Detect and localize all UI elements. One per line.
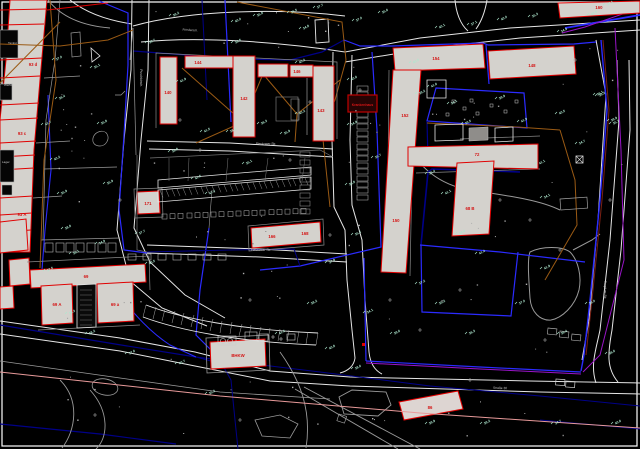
svg-text:150: 150: [392, 218, 400, 223]
svg-text:146: 146: [293, 69, 301, 74]
svg-text:142: 142: [240, 96, 248, 101]
svg-text:Pieskower Str.: Pieskower Str.: [251, 248, 272, 252]
svg-text:Pieskower Str.: Pieskower Str.: [256, 142, 277, 146]
svg-text:69 A: 69 A: [53, 302, 62, 307]
svg-text:72: 72: [475, 152, 480, 157]
svg-text:Puschkinstr.: Puschkinstr.: [139, 69, 143, 86]
svg-text:154: 154: [432, 56, 440, 61]
svg-text:171: 171: [144, 201, 152, 206]
svg-text:140: 140: [164, 90, 172, 95]
svg-text:BHKW: BHKW: [231, 353, 245, 358]
svg-text:93 d: 93 d: [29, 62, 38, 67]
svg-text:152: 152: [401, 113, 409, 118]
svg-text:Lager: Lager: [2, 160, 10, 164]
svg-text:Teupitzer Str.: Teupitzer Str.: [603, 281, 607, 300]
svg-text:93 c: 93 c: [18, 131, 27, 136]
svg-text:69: 69: [84, 274, 89, 279]
svg-text:Krankenhaus: Krankenhaus: [352, 103, 374, 107]
svg-text:144: 144: [194, 60, 202, 65]
svg-text:86: 86: [428, 405, 433, 410]
svg-text:Friedenstr.: Friedenstr.: [182, 28, 197, 33]
svg-text:Werkst: Werkst: [4, 83, 13, 87]
svg-text:68 B: 68 B: [465, 206, 474, 211]
svg-text:168: 168: [301, 231, 309, 236]
svg-text:69 a: 69 a: [111, 302, 120, 307]
svg-text:Straße 30: Straße 30: [493, 386, 507, 390]
svg-text:93 A: 93 A: [18, 212, 27, 217]
svg-text:143: 143: [317, 108, 325, 113]
svg-text:166: 166: [268, 234, 276, 239]
svg-text:148: 148: [528, 63, 536, 68]
svg-text:160: 160: [595, 5, 603, 10]
